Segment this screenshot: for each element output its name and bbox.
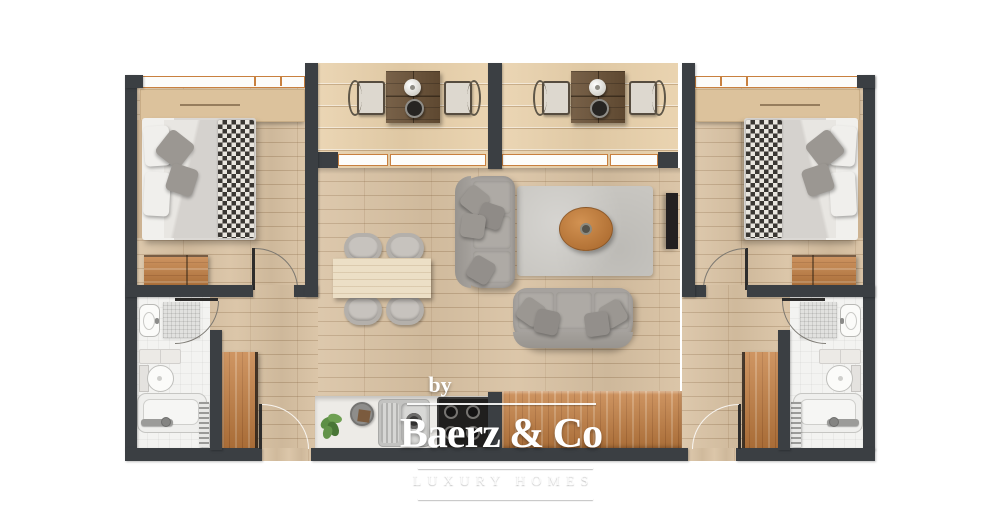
- tub-knob-right: [829, 417, 839, 427]
- basin-faucet: [155, 318, 159, 324]
- bedroom-right-window: [695, 76, 859, 88]
- watermark-rule-top: [407, 403, 596, 405]
- wall-bedroom-right-side: [682, 63, 695, 297]
- basin-bowl: [143, 312, 155, 330]
- wall-bedroom-left-bottom: [125, 285, 253, 297]
- bed-right: [744, 118, 858, 240]
- watermark-by: by: [402, 372, 478, 398]
- shelf-divider: [840, 350, 841, 363]
- toilet-button: [157, 376, 162, 381]
- balcony-right-chair: [542, 81, 570, 115]
- sofa-backrest: [513, 332, 633, 348]
- shelf-divider: [160, 350, 161, 363]
- wall-bathroom-right-side: [778, 330, 790, 450]
- wall-bottom-right: [736, 448, 875, 461]
- radiator-right: [791, 402, 801, 447]
- dresser-edge: [792, 255, 856, 257]
- wall-outer-left: [125, 75, 137, 450]
- wall-balcony-divider: [488, 63, 502, 169]
- washbasin-right: [840, 304, 861, 337]
- dining-chair: [344, 295, 382, 325]
- dining-chair: [386, 295, 424, 325]
- bed-left: [142, 118, 256, 240]
- cutting-board: [350, 402, 374, 426]
- pillow: [533, 308, 561, 336]
- wardrobe-edge: [255, 352, 258, 448]
- dining-table: [333, 258, 431, 298]
- balcony-right-chair: [629, 81, 657, 115]
- wall-corner-top-right: [857, 75, 875, 88]
- wall-bathroom-left-side: [210, 330, 222, 450]
- basin-bowl: [845, 312, 857, 330]
- window-mullion: [746, 77, 748, 86]
- balcony-right-bowl: [590, 99, 609, 118]
- watermark-rule-middle: [418, 467, 593, 469]
- pillow: [459, 212, 486, 239]
- wall-bottom-left: [125, 448, 262, 461]
- dresser-divider: [812, 255, 814, 288]
- wall-bedroom-right-bottom: [747, 285, 875, 297]
- balcony-left-chair: [357, 81, 385, 115]
- sliding-door-left: [318, 152, 488, 168]
- entry-right-threshold-floor: [688, 448, 736, 461]
- glass-panel: [610, 154, 658, 166]
- bathtub-right: [793, 393, 863, 433]
- window-mullion: [254, 77, 256, 86]
- radiator-left: [199, 402, 209, 447]
- wardrobe-handle: [180, 104, 240, 106]
- board-center: [357, 409, 371, 423]
- kitchen-plant: [318, 410, 346, 442]
- checkered-throw: [218, 120, 254, 238]
- floor-plan-canvas: by Baerz & Co LUXURY HOMES: [0, 0, 1000, 522]
- hall-wardrobe-right: [742, 352, 778, 448]
- wall-bedroom-left-side: [305, 63, 318, 297]
- glass-panel: [338, 154, 388, 166]
- sofa-two-seat: [513, 288, 633, 348]
- balcony-left-vase: [404, 79, 421, 96]
- glass-panel: [502, 154, 608, 166]
- checkered-throw: [746, 120, 782, 238]
- wardrobe-edge: [742, 352, 745, 448]
- pillow: [583, 310, 610, 337]
- toilet-button: [838, 376, 843, 381]
- dresser-left: [144, 255, 208, 288]
- hall-wardrobe-left: [222, 352, 258, 448]
- watermark-tagline: LUXURY HOMES: [398, 474, 604, 490]
- toilet-left-bowl: [147, 365, 174, 392]
- bedroom-left-window: [141, 76, 305, 88]
- door-track-stub: [318, 152, 338, 168]
- tub-knob-left: [161, 417, 171, 427]
- pillow: [829, 171, 857, 216]
- sliding-door-right: [502, 152, 678, 168]
- balcony-left-bowl: [405, 99, 424, 118]
- window-mullion: [720, 77, 722, 86]
- watermark-brand: Baerz & Co: [396, 409, 606, 459]
- dresser-edge: [144, 255, 208, 257]
- window-mullion: [280, 77, 282, 86]
- dresser-right: [792, 255, 856, 288]
- wall-tv: [666, 193, 678, 249]
- wardrobe-handle: [760, 104, 820, 106]
- balcony-left-chair: [444, 81, 472, 115]
- balcony-right-vase: [589, 79, 606, 96]
- dresser-divider: [186, 255, 188, 288]
- wall-corner-top-left: [125, 75, 143, 88]
- wall-outer-right: [863, 75, 875, 450]
- bath-shelf-left: [139, 349, 181, 364]
- bath-shelf-right: [819, 349, 861, 364]
- glass-panel: [390, 154, 486, 166]
- washbasin-left: [139, 304, 160, 337]
- sofa-three-seat: [455, 176, 515, 288]
- watermark-rule-bottom: [418, 498, 593, 500]
- entry-left-threshold-floor: [262, 448, 311, 461]
- bathtub-left: [137, 393, 207, 433]
- coffee-table-centerpiece: [580, 223, 592, 235]
- toilet-right-bowl: [826, 365, 853, 392]
- basin-faucet: [840, 318, 844, 324]
- door-track-stub: [658, 152, 678, 168]
